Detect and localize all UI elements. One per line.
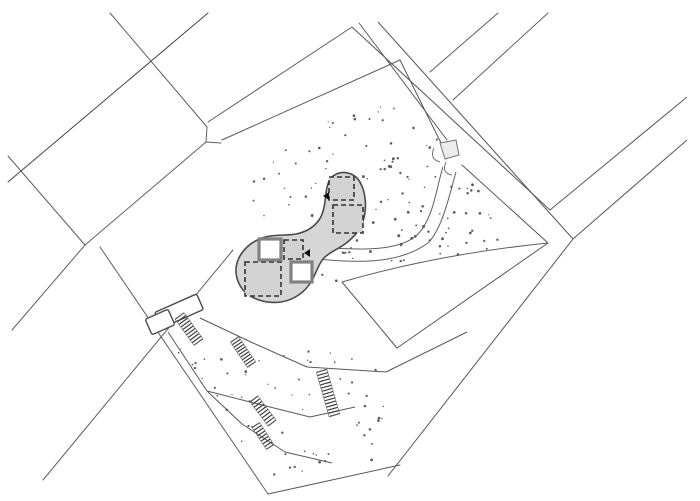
- planting-dot: [366, 178, 368, 180]
- planting-dot: [356, 424, 358, 426]
- planting-dot: [426, 145, 427, 146]
- building-footprint-dashed: [329, 177, 354, 200]
- planting-dot: [467, 188, 469, 190]
- planting-dot: [380, 106, 381, 107]
- planting-dot: [214, 387, 216, 389]
- planting-dot: [393, 108, 395, 110]
- building-footprint-dashed: [284, 240, 303, 259]
- planting-dot: [427, 166, 429, 168]
- planting-dot: [332, 153, 333, 154]
- planting-dot: [365, 395, 367, 397]
- planting-dot: [335, 279, 338, 282]
- stair-rung: [327, 407, 338, 410]
- planting-dot: [466, 192, 469, 195]
- planting-dot: [380, 201, 382, 203]
- planting-dot: [380, 168, 382, 170]
- planting-dot: [339, 378, 341, 380]
- site-boundary-line: [222, 60, 400, 140]
- stair-rung: [325, 401, 336, 404]
- planting-dot: [403, 259, 405, 261]
- planting-dot: [400, 243, 403, 246]
- planting-dot: [192, 364, 194, 366]
- planting-dot: [362, 175, 365, 178]
- planting-dot: [302, 409, 303, 410]
- planting-dot: [316, 454, 317, 455]
- planting-dot: [378, 417, 381, 420]
- planting-dot: [283, 355, 285, 357]
- planting-dot: [274, 387, 276, 389]
- planting-dot: [325, 168, 327, 170]
- building-walls-square: [259, 239, 281, 260]
- planting-dot: [427, 230, 429, 232]
- planting-dot: [477, 190, 480, 193]
- planting-dot: [358, 422, 360, 424]
- planting-dot: [245, 374, 246, 375]
- planting-dot: [284, 453, 286, 455]
- planting-dot: [441, 237, 444, 240]
- planting-dot: [291, 394, 292, 395]
- planting-dot: [392, 161, 394, 163]
- planting-dot: [423, 205, 425, 207]
- planting-dot: [381, 418, 382, 419]
- planting-dot: [407, 176, 409, 178]
- stair-rail: [250, 396, 276, 426]
- stairs-steps: [316, 369, 339, 416]
- planting-dot: [399, 172, 401, 174]
- planting-dot: [267, 384, 268, 385]
- planting-dot: [479, 212, 482, 215]
- site-boundary-line: [397, 243, 548, 348]
- planting-dot: [448, 228, 450, 230]
- planting-dot: [428, 146, 431, 149]
- planting-dots-layer: [178, 106, 499, 475]
- planting-dot: [383, 406, 384, 407]
- planting-dot: [344, 134, 346, 136]
- planting-dot: [307, 360, 308, 361]
- building-footprint-dashed: [245, 262, 281, 296]
- planting-dot: [273, 161, 274, 162]
- planting-dot: [410, 237, 413, 240]
- terrace-path-line: [200, 318, 386, 372]
- planting-dot: [447, 245, 449, 247]
- planting-dot: [304, 451, 306, 453]
- planting-dot: [194, 367, 196, 369]
- planting-dot: [247, 425, 249, 427]
- field-parcel-line: [12, 245, 85, 330]
- planting-dot: [351, 381, 353, 383]
- planting-dot: [311, 188, 312, 189]
- field-parcel-line: [110, 13, 207, 127]
- field-parcel-line: [208, 27, 352, 122]
- planting-dot: [436, 139, 438, 141]
- planting-dot: [471, 183, 474, 186]
- planting-dot: [414, 235, 417, 238]
- planting-dot: [351, 358, 353, 360]
- planting-dot: [407, 211, 410, 214]
- planting-dot: [397, 234, 400, 237]
- planting-dot: [392, 157, 395, 160]
- planting-dot: [424, 186, 426, 188]
- planting-dot: [328, 121, 329, 122]
- planting-dot: [204, 358, 206, 360]
- site-features-layer: [145, 140, 459, 449]
- planting-dot: [321, 274, 323, 276]
- planting-dot: [332, 122, 334, 124]
- planting-dot: [318, 461, 321, 464]
- roads-layer: [352, 22, 687, 239]
- gate-swing-arc: [444, 162, 452, 175]
- road-edge: [378, 22, 687, 239]
- planting-dot: [488, 214, 489, 215]
- field-parcel-line: [8, 13, 208, 182]
- stair-rung: [320, 382, 331, 385]
- stair-rung: [326, 404, 337, 407]
- site-boundary-line: [342, 282, 397, 348]
- planting-dot: [294, 466, 296, 468]
- planting-dot: [315, 183, 316, 184]
- planting-dot: [469, 232, 472, 235]
- planting-dot: [465, 242, 467, 244]
- stair-rung: [318, 376, 329, 379]
- planting-dot: [453, 211, 456, 214]
- planting-dot: [342, 252, 344, 254]
- planting-dot: [241, 396, 242, 397]
- planting-dot: [311, 214, 314, 217]
- planting-dot: [370, 459, 373, 462]
- field-parcel-line: [206, 142, 221, 143]
- building-footprint-dashed: [333, 205, 363, 233]
- planting-dot: [465, 212, 468, 215]
- field-parcel-line: [430, 13, 498, 72]
- field-parcel-line: [453, 13, 548, 100]
- planting-dot: [371, 443, 373, 445]
- planting-dot: [318, 147, 321, 150]
- planting-dot: [289, 466, 291, 468]
- planting-dot: [201, 378, 202, 379]
- planting-dot: [295, 162, 297, 164]
- planting-dot: [178, 352, 180, 354]
- planting-dot: [353, 114, 356, 117]
- planting-dot: [434, 176, 436, 178]
- planting-dot: [375, 209, 376, 210]
- planting-dot: [328, 453, 330, 455]
- planting-dot: [348, 251, 350, 253]
- planting-dot: [369, 250, 372, 253]
- planting-dot: [194, 362, 196, 364]
- planting-dot: [231, 394, 232, 395]
- planting-dot: [330, 352, 331, 353]
- stairs-steps: [250, 396, 276, 426]
- planting-dot: [422, 225, 425, 228]
- planting-dot: [302, 471, 303, 472]
- planting-dot: [401, 229, 403, 231]
- planting-dot: [348, 393, 350, 395]
- planting-dot: [354, 118, 357, 121]
- stair-rung: [325, 398, 336, 401]
- planting-dot: [309, 361, 311, 363]
- planting-dot: [253, 200, 255, 202]
- building-walls-square: [291, 262, 312, 282]
- planting-dot: [369, 428, 372, 431]
- planting-dot: [309, 394, 311, 396]
- planting-dot: [324, 460, 326, 462]
- planting-dot: [382, 119, 384, 121]
- planting-dot: [401, 192, 403, 194]
- planting-dot: [378, 111, 379, 112]
- planting-dot: [220, 358, 223, 361]
- stair-rung: [324, 395, 335, 398]
- planting-dot: [486, 248, 488, 250]
- field-parcel-line: [359, 23, 447, 140]
- planting-dot: [400, 260, 402, 262]
- planting-dot: [471, 230, 473, 232]
- planting-dot: [278, 173, 280, 175]
- planting-dot: [388, 165, 391, 168]
- planting-dot: [253, 180, 255, 182]
- planting-dot: [289, 196, 291, 198]
- gate-swing-arc: [432, 148, 440, 162]
- field-parcel-line: [85, 142, 206, 245]
- planting-dot: [415, 224, 417, 226]
- planting-dot: [217, 395, 219, 397]
- planting-dot: [326, 160, 328, 162]
- planting-dot: [273, 473, 275, 475]
- planting-dot: [377, 419, 380, 422]
- road-edge: [352, 27, 687, 210]
- terrace-path-line: [207, 391, 332, 463]
- planting-dot: [458, 188, 460, 190]
- planting-dot: [285, 149, 287, 151]
- planting-dot: [305, 195, 308, 198]
- site-boundary-line: [268, 465, 400, 494]
- planting-dot: [356, 239, 359, 242]
- planting-dot: [429, 239, 431, 241]
- planting-dot: [412, 127, 415, 130]
- shed-structure: [145, 309, 175, 335]
- planting-dot: [397, 157, 399, 159]
- planting-dot: [372, 221, 375, 224]
- planting-dot: [374, 369, 376, 371]
- planting-dot: [244, 370, 247, 373]
- planting-dot: [334, 361, 336, 363]
- field-parcel-line: [206, 127, 207, 142]
- planting-dot: [408, 202, 410, 204]
- planting-dot: [439, 253, 441, 255]
- planting-dot: [308, 150, 310, 152]
- planting-dot: [350, 247, 352, 249]
- planting-dot: [457, 253, 460, 256]
- planting-dot: [439, 213, 440, 214]
- site-plan-drawing: [0, 0, 700, 501]
- site-boundary-line: [400, 60, 441, 143]
- planting-dot: [490, 217, 492, 219]
- planting-dot: [496, 239, 498, 241]
- site-boundary-line: [462, 165, 548, 243]
- planting-dot: [365, 145, 367, 147]
- planting-dot: [263, 178, 265, 180]
- planting-dot: [288, 204, 290, 206]
- planting-dot: [263, 215, 264, 216]
- planting-dot: [363, 434, 365, 436]
- stairs-steps: [252, 423, 274, 450]
- stair-rung: [322, 388, 333, 391]
- terrace-path-line: [168, 332, 207, 391]
- planting-dot: [241, 441, 243, 443]
- planting-dot: [344, 252, 346, 254]
- planting-dot: [368, 118, 370, 120]
- planting-dot: [387, 199, 388, 200]
- entrance-gate: [440, 140, 459, 159]
- planting-dot: [307, 350, 309, 352]
- planting-dot: [391, 260, 393, 262]
- planting-dot: [384, 159, 386, 161]
- planting-dot: [408, 179, 409, 180]
- stair-rung: [319, 379, 330, 382]
- stair-rung: [323, 391, 334, 394]
- planting-dot: [383, 168, 385, 170]
- planting-dot: [364, 405, 367, 408]
- field-parcel-line: [43, 250, 233, 480]
- planting-dot: [352, 258, 353, 259]
- planting-dot: [298, 379, 300, 381]
- terrace-paths-layer: [168, 318, 467, 463]
- planting-dot: [420, 210, 422, 212]
- stair-rung: [321, 385, 332, 388]
- planting-dot: [445, 232, 447, 234]
- planting-dot: [390, 142, 393, 145]
- planting-dot: [180, 349, 181, 350]
- planting-dot: [284, 188, 285, 189]
- planting-dot: [470, 189, 473, 192]
- stair-rung: [328, 410, 339, 413]
- stair-rung: [317, 373, 328, 376]
- planting-dot: [313, 453, 315, 455]
- planting-dot: [483, 240, 485, 242]
- planting-dot: [439, 245, 442, 248]
- field-parcel-line: [8, 156, 85, 245]
- planting-dot: [447, 218, 449, 220]
- planting-dot: [225, 408, 228, 411]
- planting-dot: [394, 218, 397, 221]
- planting-dot: [329, 127, 330, 128]
- planting-dot: [281, 431, 283, 433]
- stairs-steps: [230, 337, 255, 367]
- planting-dot: [226, 372, 228, 374]
- planting-dot: [450, 186, 452, 188]
- planting-dot: [258, 360, 259, 361]
- terrace-path-line: [386, 332, 467, 372]
- site-plan-sheet: [0, 0, 700, 501]
